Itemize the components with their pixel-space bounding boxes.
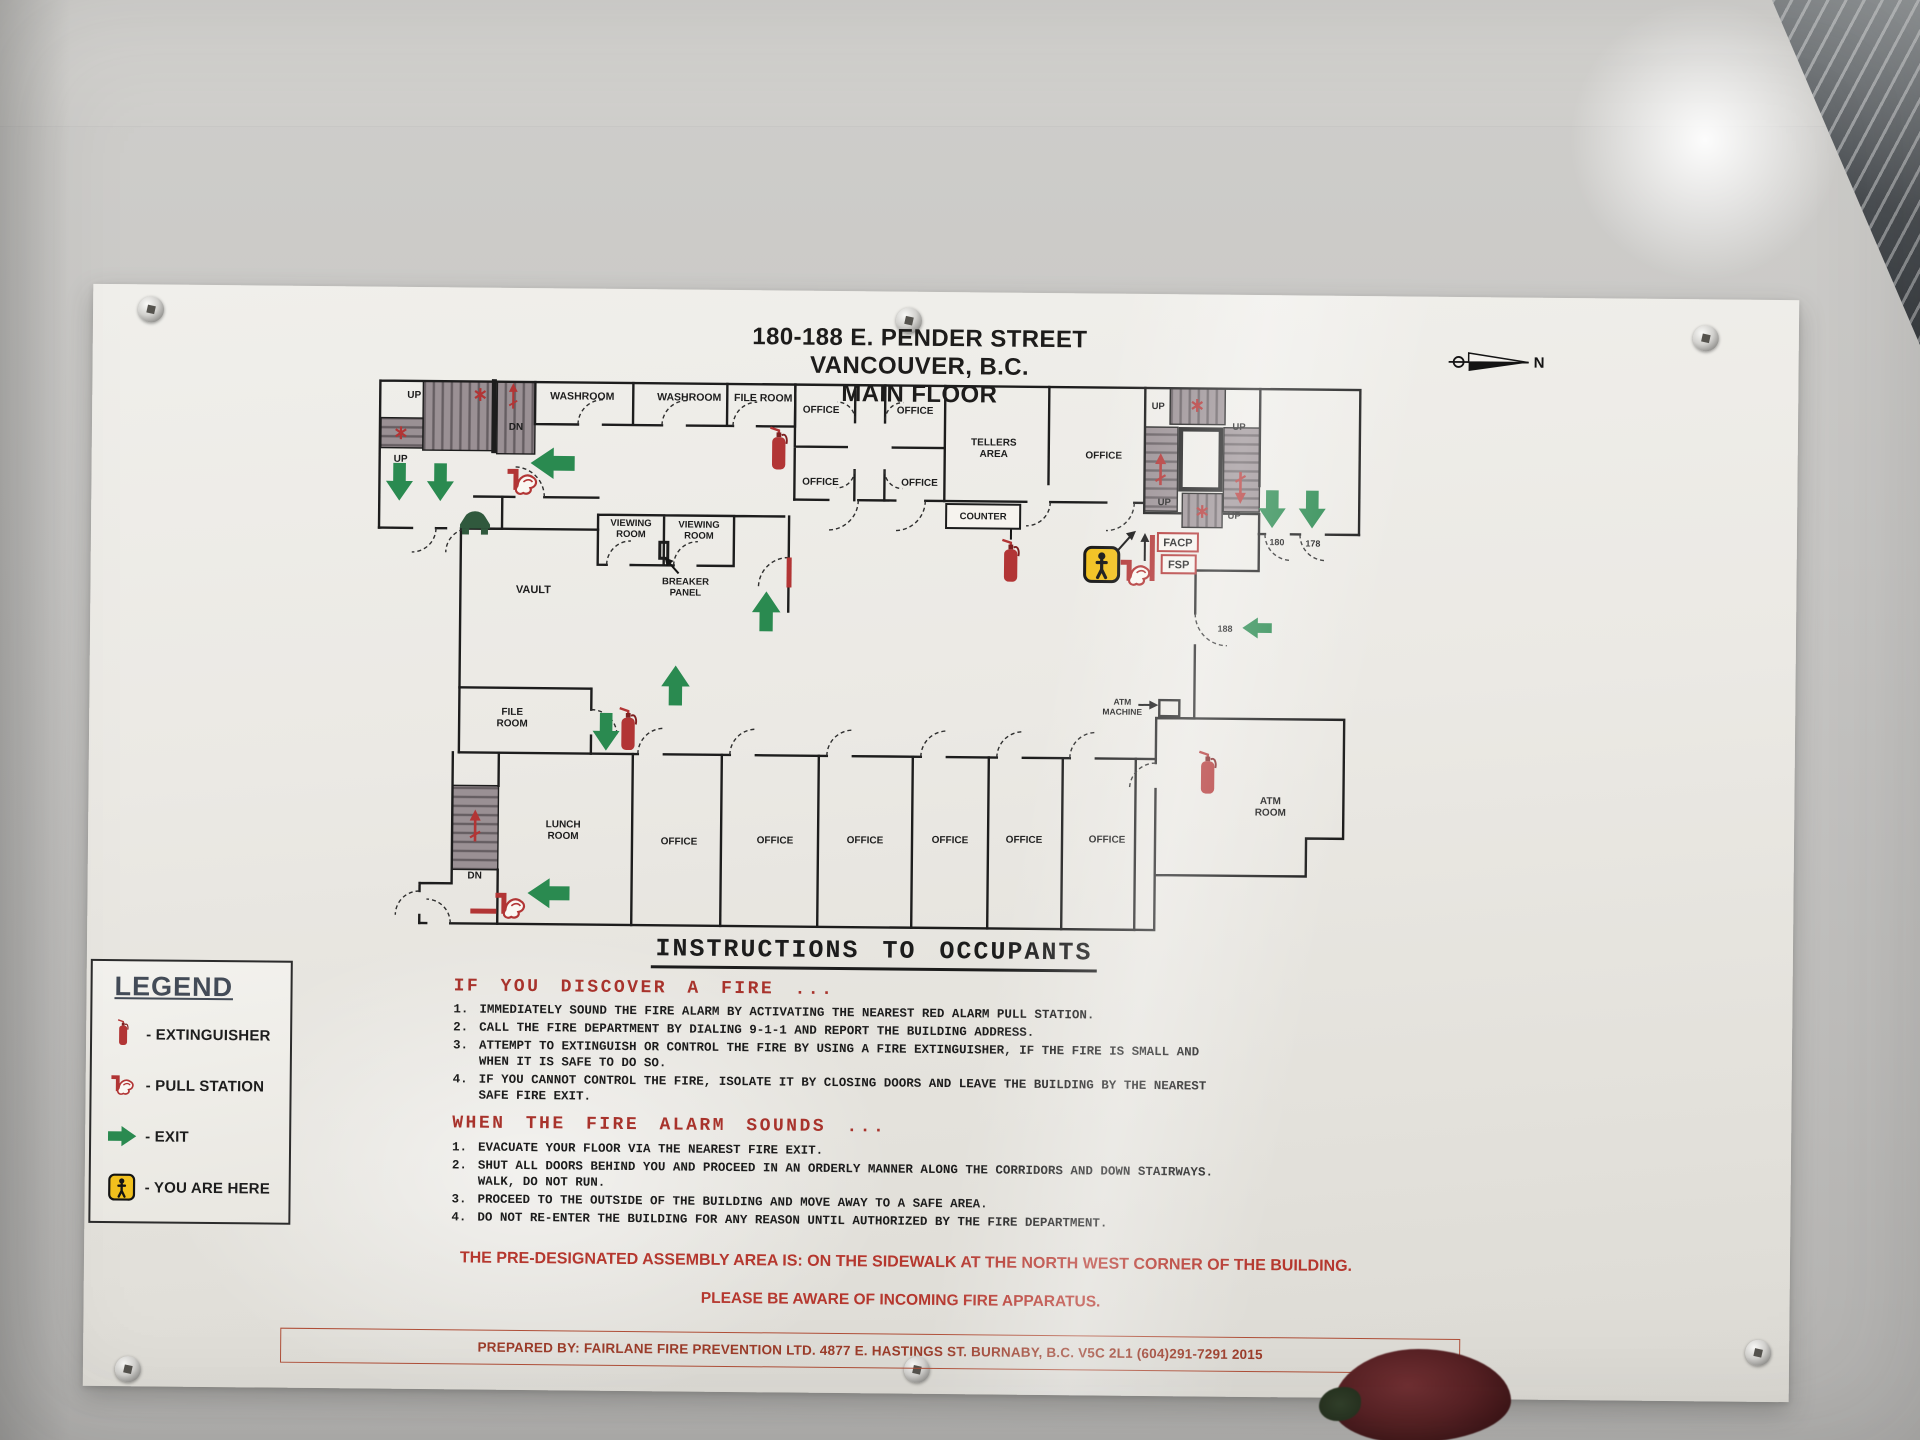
legend-item-label: - YOU ARE HERE [145, 1179, 270, 1197]
legend-box: LEGEND - EXTINGUISHER- PULL STATION- EXI… [88, 959, 293, 1225]
instruction-item-number: 4. [451, 1209, 477, 1225]
extinguisher-icon [1002, 540, 1019, 582]
room-label: FILEROOM [497, 707, 528, 730]
extinguisher-icon [104, 1014, 142, 1054]
extinguisher-icon [770, 428, 787, 470]
room-label: OFFICE [1085, 450, 1122, 461]
instruction-item-number: 2. [453, 1019, 479, 1035]
room-label: WASHROOM [657, 391, 722, 404]
screw-icon [1693, 325, 1719, 351]
room-label: OFFICE [802, 477, 839, 488]
instruction-item-number: 2. [452, 1157, 478, 1189]
instruction-item-number: 3. [453, 1037, 479, 1069]
room-label: COUNTER [960, 511, 1007, 522]
exit-arrow-icon [527, 878, 569, 908]
compass-north-icon: N [1444, 337, 1544, 388]
wall-left-shadow [0, 0, 70, 1440]
you-are-here-icon [102, 1167, 140, 1207]
room-label: UP [407, 390, 421, 401]
floor-plan: FACPFSPCOUNTER UPDNUPWASHROOMWASHROOMFIL… [370, 378, 1395, 948]
you-are-here-icon [1085, 547, 1119, 581]
room-label: VAULT [516, 584, 551, 596]
legend-item-label: - PULL STATION [146, 1077, 265, 1095]
pull-station-icon [1120, 560, 1149, 585]
room-label: 188 [1218, 624, 1233, 634]
evacuation-sign-panel: 180-188 E. PENDER STREET VANCOUVER, B.C.… [83, 284, 1799, 1402]
legend-item-label: - EXTINGUISHER [146, 1026, 271, 1044]
room-label: FACP [1163, 537, 1192, 549]
screw-icon [115, 1356, 141, 1382]
room-label: 180 [1269, 537, 1284, 547]
room-label: OFFICE [757, 835, 794, 846]
equipment-icon [460, 511, 490, 535]
room-label: OFFICE [1089, 834, 1126, 845]
room-label: FILE ROOM [734, 392, 793, 405]
room-label: ATMMACHINE [1102, 697, 1142, 717]
photo-of-fire-evacuation-sign: 180-188 E. PENDER STREET VANCOUVER, B.C.… [0, 0, 1920, 1440]
exit-arrow-icon [661, 665, 690, 705]
instructions-section: INSTRUCTIONS TO OCCUPANTS IF YOU DISCOVE… [280, 932, 1464, 1374]
room-label: OFFICE [803, 405, 840, 416]
assembly-note: THE PRE-DESIGNATED ASSEMBLY AREA IS: ON … [281, 1247, 1461, 1276]
exit-arrow-icon [752, 591, 781, 631]
extinguisher-icon [1199, 752, 1216, 794]
room-label: UP [394, 454, 408, 465]
leader-arrows [663, 510, 1160, 709]
room-label: UP [1158, 497, 1172, 508]
room-label: OFFICE [661, 836, 698, 847]
instruction-item-number: 3. [451, 1191, 477, 1207]
exit-arrow-icon [530, 447, 574, 479]
room-label: TELLERSAREA [971, 437, 1017, 460]
instruction-item-number: 1. [452, 1139, 478, 1155]
apparatus-note: PLEASE BE AWARE OF INCOMING FIRE APPARAT… [281, 1285, 1461, 1314]
room-label: OFFICE [901, 478, 938, 489]
pull-station-icon [103, 1065, 141, 1105]
room-label: UP [1232, 422, 1246, 433]
leaf [1319, 1387, 1361, 1421]
exit-arrow-icon [103, 1116, 141, 1156]
room-label: VIEWINGROOM [610, 518, 651, 540]
room-label: UP [1227, 511, 1241, 522]
legend-item: - PULL STATION [103, 1065, 281, 1107]
instruction-item-text: SHUT ALL DOORS BEHIND YOU AND PROCEED IN… [478, 1157, 1218, 1196]
room-label: OFFICE [847, 835, 884, 846]
legend-item-label: - EXIT [145, 1128, 189, 1145]
exit-arrow-icon [1259, 490, 1286, 528]
room-label: DN [509, 422, 524, 433]
room-label: WASHROOM [550, 390, 615, 403]
room-label: OFFICE [1006, 835, 1043, 846]
instruction-item: 4.IF YOU CANNOT CONTROL THE FIRE, ISOLAT… [452, 1071, 1462, 1113]
room-label: OFFICE [932, 835, 969, 846]
exit-arrow-icon [427, 463, 454, 501]
room-label: 178 [1305, 538, 1320, 548]
legend-item: - EXTINGUISHER [104, 1014, 282, 1056]
legend-title: LEGEND [114, 971, 282, 1004]
walls [375, 381, 1360, 932]
compass-label: N [1534, 355, 1545, 372]
title-line: VANCOUVER, B.C. [704, 351, 1134, 383]
exit-arrow-icon [1299, 491, 1326, 529]
screw-icon [1745, 1340, 1771, 1366]
legend-item: - YOU ARE HERE [102, 1167, 280, 1209]
exit-arrow-icon [386, 463, 413, 501]
room-label: DN [467, 870, 482, 881]
room-label: LUNCHROOM [545, 819, 580, 842]
room-label: UP [1152, 401, 1166, 412]
room-label: FSP [1168, 559, 1190, 571]
extinguisher-icon [619, 708, 636, 750]
instruction-item-number: 4. [452, 1071, 478, 1103]
room-label: VIEWINGROOM [678, 519, 719, 541]
prepared-by-box: PREPARED BY: FAIRLANE FIRE PREVENTION LT… [280, 1327, 1460, 1373]
exit-arrow-icon [1242, 617, 1272, 638]
instruction-item-text: IF YOU CANNOT CONTROL THE FIRE, ISOLATE … [478, 1072, 1218, 1111]
room-label: BREAKERPANEL [662, 576, 709, 598]
instruction-item-number: 1. [453, 1001, 479, 1017]
room-label: ATMROOM [1255, 796, 1286, 819]
red-wall-devices [470, 529, 1155, 921]
room-label: OFFICE [897, 406, 934, 417]
screw-icon [138, 296, 164, 322]
title-line: 180-188 E. PENDER STREET [705, 323, 1135, 355]
instruction-item-text: ATTEMPT TO EXTINGUISH OR CONTROL THE FIR… [479, 1038, 1219, 1077]
legend-item: - EXIT [103, 1116, 281, 1158]
exit-arrow-icon [592, 713, 619, 751]
pull-station-icon [495, 893, 524, 918]
